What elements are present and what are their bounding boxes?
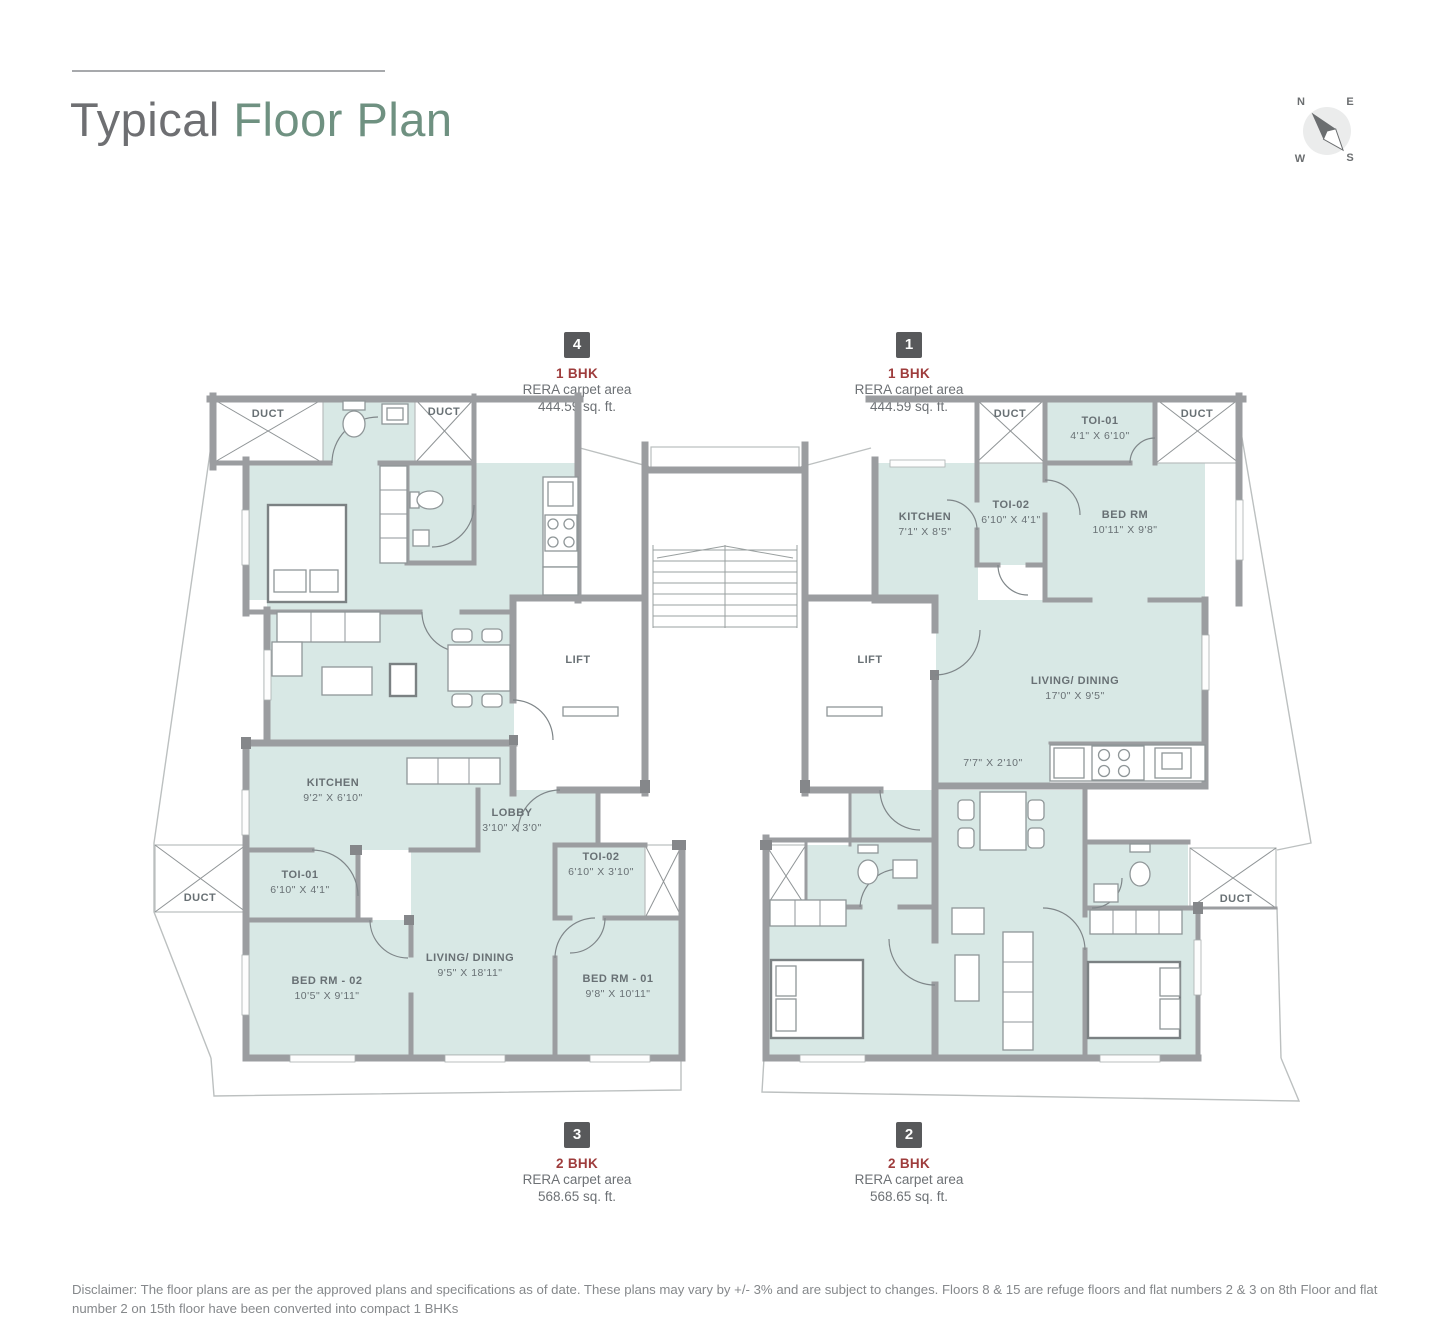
duct-label: DUCT [184, 892, 217, 904]
cabinet [1003, 932, 1033, 1050]
toilet [858, 860, 878, 884]
room-dim-u1-toi02: 6'10" X 4'1" [981, 514, 1041, 526]
room-dim-u3-living: 9'5" X 18'11" [437, 967, 502, 979]
room-label-u3-toi01: TOI-01 [281, 869, 318, 881]
duct-label: DUCT [428, 406, 461, 418]
room-label-u3-bed01: BED RM - 01 [583, 973, 654, 985]
room-dim-u1-toi01: 4'1" X 6'10" [1070, 430, 1130, 442]
room-dim-u3-lobby: 3'10" X 3'0" [482, 822, 542, 834]
sink [893, 860, 917, 878]
room-label-u3-toi02: TOI-02 [582, 851, 619, 863]
room-dim-u3-kitchen: 9'2" X 6'10" [303, 792, 363, 804]
room-label-u3-kitchen: KITCHEN [307, 777, 359, 789]
lift-label: LIFT [565, 654, 590, 666]
room-label-u1-kitchen: KITCHEN [899, 511, 951, 523]
floor-plan-page: Typical Floor Plan N E W S 4 1 BHK RERA … [0, 0, 1452, 1344]
disclaimer-text: Disclaimer: The floor plans are as per t… [72, 1280, 1402, 1318]
room-label-u1-bed: BED RM [1102, 509, 1148, 521]
duct-label: DUCT [994, 408, 1027, 420]
room-dim-u3-bed02: 10'5" X 9'11" [294, 990, 359, 1002]
room-dim-u1-passage: 7'7" X 2'10" [963, 757, 1023, 769]
common-lobby [514, 713, 935, 790]
room-dim-u1-kitchen: 7'1" X 8'5" [898, 526, 951, 538]
toilet [343, 411, 365, 437]
room-dim-u1-bed: 10'11" X 9'8" [1092, 524, 1157, 536]
toilet [1130, 862, 1150, 886]
room-label-u1-toi02: TOI-02 [992, 499, 1029, 511]
room-dim-u3-bed01: 9'8" X 10'11" [585, 988, 650, 1000]
room-label-u3-living: LIVING/ DINING [426, 952, 514, 964]
room-dim-u3-toi02: 6'10" X 3'10" [568, 866, 634, 878]
duct-label: DUCT [1181, 408, 1214, 420]
room-label-u1-toi01: TOI-01 [1081, 415, 1118, 427]
duct-label: DUCT [252, 408, 285, 420]
room-label-u3-lobby: LOBBY [492, 807, 533, 819]
sink [1094, 884, 1118, 902]
floor-plan-svg: DUCT DUCT DUCT DUCT DUCT DUCT LIFT LIFT … [0, 0, 1452, 1344]
lift-label: LIFT [857, 654, 882, 666]
room-label-u3-bed02: BED RM - 02 [292, 975, 363, 987]
room-dim-u3-toi01: 6'10" X 4'1" [270, 884, 330, 896]
tv-unit [390, 664, 416, 696]
room-label-u1-living: LIVING/ DINING [1031, 675, 1119, 687]
dining-table [448, 645, 510, 691]
duct-label: DUCT [1220, 893, 1253, 905]
room-dim-u1-living: 17'0" X 9'5" [1045, 690, 1105, 702]
coffee-table [322, 667, 372, 695]
sofa [277, 612, 380, 642]
dining-table [980, 792, 1026, 850]
